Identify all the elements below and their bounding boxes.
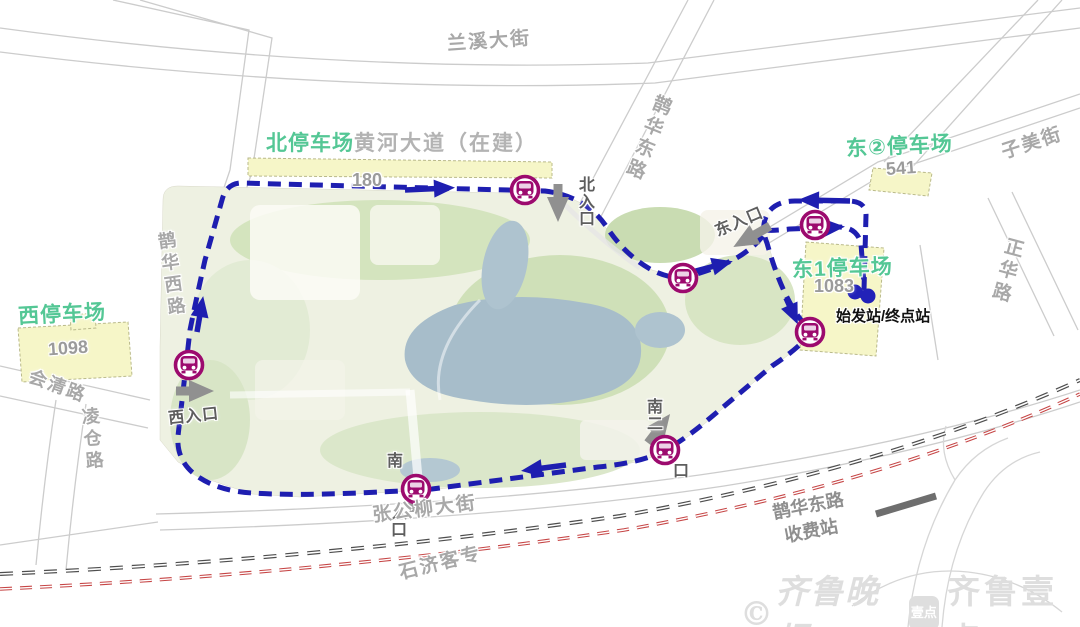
watermark-paper: 齐鲁晚报: [775, 565, 901, 627]
bus-stop-icon-south2: [652, 437, 679, 464]
yidian-logo-icon: 壹点: [909, 596, 940, 627]
west-parking-capacity: 1098: [47, 337, 88, 361]
route-arrow-north-east: [405, 188, 448, 190]
bus-stop-icon-inner-east: [670, 265, 697, 292]
bus-stop-icon-east-upper: [802, 212, 829, 239]
toll-gate-bar: [876, 496, 936, 514]
west-parking-name: 西停车场: [17, 296, 106, 331]
watermark-copyright: ©: [740, 594, 775, 627]
watermark: © 齐鲁晚报 壹点 齐鲁壹点: [740, 565, 1080, 627]
park-area: [160, 186, 813, 500]
street-label-huanghe: 黄河大道（在建）: [354, 132, 538, 155]
lake: [405, 297, 642, 405]
bus-stop-icon-north: [512, 177, 539, 204]
east1-parking-capacity: 1083: [814, 276, 854, 297]
north-parking-name: 北停车场: [266, 132, 354, 155]
south2-entrance-label-top: 南二: [640, 398, 664, 432]
east2-parking-capacity: 541: [885, 157, 916, 180]
north-parking-label: 北停车场黄河大道（在建）: [266, 127, 538, 157]
north-entrance-label: 北入口: [572, 176, 596, 227]
map-canvas: 兰溪大街 北停车场黄河大道（在建） 180 鹊华东路 东②停车场 541 子美街…: [0, 0, 1080, 627]
terminus-label: 始发站/终点站: [836, 305, 930, 326]
bus-stop-icon-east-lower: [797, 319, 824, 346]
watermark-brand: 齐鲁壹点: [947, 565, 1080, 627]
route-arrow-terminal-west: [805, 200, 850, 201]
south2-entrance-label-bottom: 口: [666, 462, 690, 479]
south-entrance-label-top: 南: [380, 452, 404, 469]
bus-stop-icon-west: [176, 352, 203, 379]
parking-north-polygon: [248, 158, 552, 178]
north-parking-capacity: 180: [352, 170, 382, 191]
